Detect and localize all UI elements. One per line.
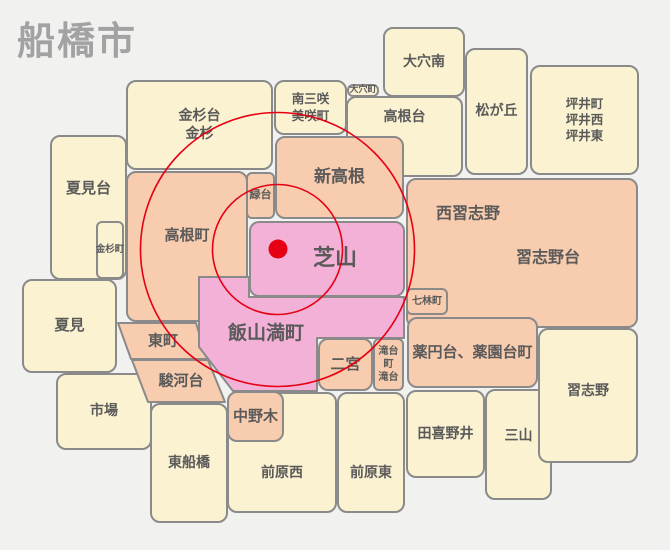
page-title: 船橋市 [17,10,137,65]
region-nanabayashicho[interactable]: 七林町 [406,288,448,315]
region-ichiba[interactable]: 市場 [56,373,152,450]
funabashi-area-map: 船橋市 夏見台 金杉台 金杉 南三咲 美咲町 大穴南 大穴町 高根台 松が丘 坪… [0,0,670,550]
region-higashifunabashi[interactable]: 東船橋 [150,403,228,523]
region-matsugaoka[interactable]: 松が丘 [465,48,528,175]
region-natsumi[interactable]: 夏見 [22,279,117,373]
region-shibayama[interactable]: 芝山 [249,221,405,297]
region-oanaminami[interactable]: 大穴南 [383,27,465,97]
region-takidaicho[interactable]: 滝台町 滝台 [373,338,404,391]
region-surugadai-label: 駿河台 [158,372,203,391]
region-nakanogi[interactable]: 中野木 [227,391,284,442]
region-yakuendai[interactable]: 薬円台、薬園台町 [407,317,538,388]
region-narashino[interactable]: 習志野 [538,328,638,463]
region-ninomiya[interactable]: 二宮 [318,338,373,391]
region-kanasugidai[interactable]: 金杉台 金杉 [126,80,273,170]
region-maebarahigashi[interactable]: 前原東 [337,392,405,513]
region-kanasugicho[interactable]: 金杉町 [96,221,124,279]
region-nishinarashino-label: 西習志野 [436,204,500,225]
region-tsuboi[interactable]: 坪井町 坪井西 坪井東 [530,65,639,175]
region-takinoi[interactable]: 田喜野井 [406,390,485,478]
region-minamimisaki[interactable]: 南三咲 美咲町 [274,80,347,135]
region-iiyamamitsucho-label: 飯山満町 [228,322,304,346]
region-higashicho-label: 東町 [148,332,178,351]
region-narashinodai-label: 習志野台 [516,248,580,269]
region-midoridai[interactable]: 緑台 [246,172,275,219]
region-shintakane[interactable]: 新高根 [275,136,404,219]
